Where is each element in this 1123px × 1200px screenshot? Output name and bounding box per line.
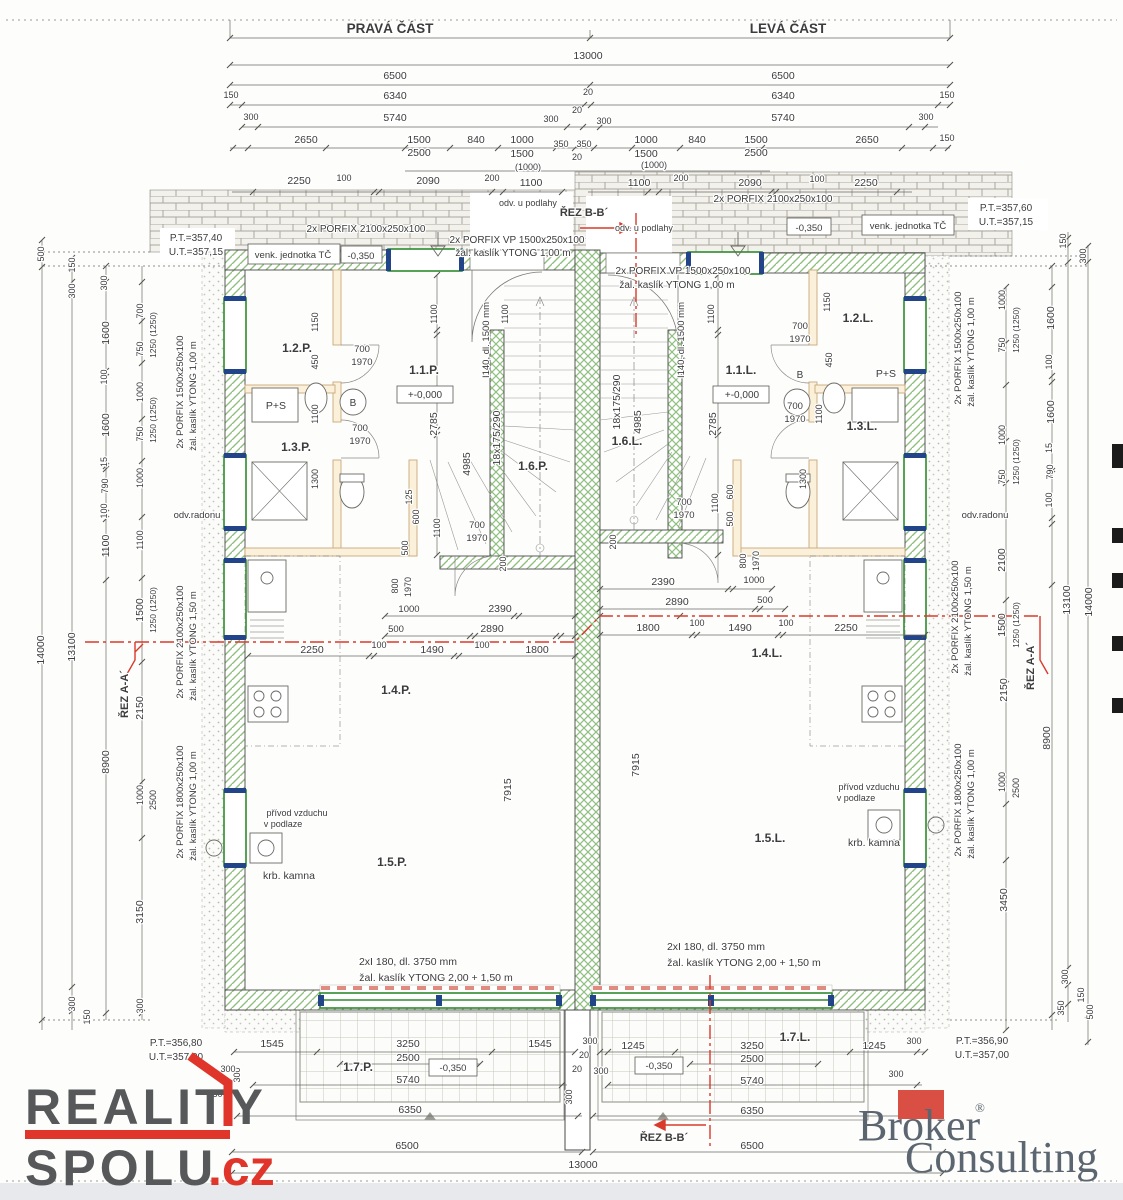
dim-label: 3250 xyxy=(740,1040,764,1052)
dim-label: 1100 xyxy=(500,304,510,323)
dim-label: odv. u podlahy xyxy=(499,198,557,208)
dim-label: 1970 xyxy=(351,357,372,368)
dim-label: v podlaze xyxy=(264,819,303,829)
dim-label: 6350 xyxy=(398,1104,422,1116)
dim-label: 1245 xyxy=(862,1040,886,1052)
broker-consulting-logo[interactable]: Broker ® Consulting xyxy=(858,1090,1098,1182)
dim-label: 2x PORFIX 1800x250x100 xyxy=(953,743,964,856)
room-label: 1.2.L. xyxy=(843,311,874,325)
dim-label: 350 xyxy=(576,139,591,149)
dim-label: 1100 xyxy=(135,530,145,549)
dim-label: 800 xyxy=(738,553,748,568)
dim-label: 1150 xyxy=(310,312,320,331)
dim-label: 13000 xyxy=(573,50,602,62)
dim-label: 6500 xyxy=(771,70,795,82)
dim-label: 1600 xyxy=(1045,306,1057,330)
dim-label: 750 xyxy=(997,469,1007,484)
dim-label: 1970 xyxy=(673,510,694,521)
dim-label: 18x175/290 xyxy=(611,374,623,429)
dim-label: 300 xyxy=(888,1069,903,1079)
dim-label: 2xI 180, dl. 3750 mm xyxy=(359,956,457,968)
dim-label: 5740 xyxy=(740,1075,764,1087)
dim-label: 300 xyxy=(593,1066,608,1076)
room-label: 1.4.L. xyxy=(752,646,783,660)
dim-label: 300 xyxy=(906,1036,921,1046)
dim-label: 100 xyxy=(474,640,489,650)
dim-label: 200 xyxy=(498,556,508,571)
party-wall-extension xyxy=(565,1010,590,1150)
room-label: LEVÁ ČÁST xyxy=(750,21,827,36)
dim-label: 1100 xyxy=(432,518,442,537)
room-label: 1.2.P. xyxy=(282,341,312,355)
dim-label: 1500 xyxy=(744,134,768,146)
dim-label: 350 xyxy=(553,139,568,149)
dim-label: 2x PORFIX VP 1500x250x100 xyxy=(450,235,585,246)
washbasin-icon xyxy=(823,383,845,413)
dim-label: 150 xyxy=(1058,233,1068,248)
dim-label: U.T.=357,15 xyxy=(169,247,224,258)
dim-label: 1970 xyxy=(466,533,487,544)
room-label: 1.6.L. xyxy=(612,434,643,448)
dim-label: 1000 xyxy=(135,382,145,402)
dim-label: 1250 (1250) xyxy=(148,312,158,358)
dim-label: 450 xyxy=(824,352,834,367)
room-label: 1.5.P. xyxy=(377,855,407,869)
dim-label: P+S xyxy=(876,368,896,380)
section-label: ŘEZ B-B´ xyxy=(560,206,609,219)
dim-label: 1100 xyxy=(310,404,320,423)
dim-label: 2500 xyxy=(1011,778,1021,798)
dim-label: 840 xyxy=(467,134,485,146)
dim-label: 100 xyxy=(778,618,793,628)
room-label: 1.7.L. xyxy=(780,1030,811,1044)
dim-label: 150 xyxy=(223,90,238,100)
floor-plan-drawing: PRAVÁ ČÁSTLEVÁ ČÁST130006500650015063402… xyxy=(0,0,1123,1200)
dim-label: 2150 xyxy=(134,696,146,720)
dim-label: 2x PORFIX 1500x250x100 xyxy=(953,291,964,404)
dim-label: 20 xyxy=(583,87,593,97)
dim-label: 300 xyxy=(596,116,611,126)
dim-label: 150 xyxy=(67,257,77,272)
dim-label: 1000 xyxy=(398,604,419,615)
dim-label: 1600 xyxy=(100,321,112,345)
dim-label: 1970 xyxy=(403,577,413,597)
dim-label: 1490 xyxy=(728,622,752,634)
dim-label: 125 xyxy=(404,489,414,504)
section-label: ŘEZ B-B´ xyxy=(640,1131,689,1144)
dim-label: 1500 xyxy=(407,134,431,146)
kitchen-sink-icon xyxy=(248,560,286,612)
dim-label: 7915 xyxy=(630,753,642,777)
dim-label: 100 xyxy=(1044,354,1054,369)
dim-label: U.T.=357,15 xyxy=(979,217,1034,228)
reality-logo-word2: SPOLU xyxy=(25,1140,217,1196)
dim-label: 6500 xyxy=(383,70,407,82)
dim-label: P.T.=356,80 xyxy=(150,1038,203,1049)
washer-dryer-left-unit xyxy=(852,388,898,422)
reality-logo-bar xyxy=(25,1130,230,1139)
walls xyxy=(225,250,925,1010)
dim-label: 350 xyxy=(1056,1000,1066,1015)
dim-label: 2090 xyxy=(416,175,440,187)
dim-label: 4985 xyxy=(632,410,644,434)
dim-label: 2500 xyxy=(744,147,768,159)
dim-label: odv. u podlahy xyxy=(615,223,673,233)
dim-label: 700 xyxy=(135,303,145,318)
reality-logo-tld: .cz xyxy=(208,1140,275,1196)
dim-label: 5740 xyxy=(383,112,407,124)
dim-label: 3250 xyxy=(396,1038,420,1050)
dim-label: 500 xyxy=(1085,1004,1095,1019)
dim-label: 2650 xyxy=(294,134,318,146)
dim-label: 300 xyxy=(67,283,77,298)
stair-landing-wall-left-unit xyxy=(600,530,723,543)
dim-label: 7915 xyxy=(502,778,514,802)
dim-label: 100 xyxy=(99,503,109,518)
dim-label: 750 xyxy=(997,337,1007,352)
section-label: ŘEZ A-A´ xyxy=(118,670,131,718)
dim-label: 1545 xyxy=(260,1038,284,1050)
dim-label: 1800 xyxy=(525,644,549,656)
dim-label: 14000 xyxy=(1083,587,1095,616)
dim-label: 1500 xyxy=(510,148,534,160)
dim-label: 840 xyxy=(688,134,706,146)
dim-label: 15 xyxy=(1044,443,1054,453)
dim-label: 1150 xyxy=(822,292,832,311)
dim-label: 150 xyxy=(939,90,954,100)
dim-label: 600 xyxy=(725,484,735,499)
dim-label: 2890 xyxy=(665,596,689,608)
dim-label: 2500 xyxy=(407,147,431,159)
dim-label: 300 xyxy=(1078,248,1088,263)
dim-label: 1970 xyxy=(349,436,370,447)
room-label: 1.3.P. xyxy=(281,440,311,454)
dim-label: P.T.=357,60 xyxy=(980,203,1033,214)
dim-label: 2785 xyxy=(707,412,719,436)
room-label: 1.7.P. xyxy=(343,1060,373,1074)
dim-label: 100 xyxy=(689,618,704,628)
dim-label: 6340 xyxy=(771,90,795,102)
dim-label: 13100 xyxy=(66,632,78,661)
room-label: 1.5.L. xyxy=(755,831,786,845)
dim-label: 200 xyxy=(608,534,618,549)
dim-label: žal. kaslík YTONG 1,00 m xyxy=(188,751,199,861)
dim-label: 13100 xyxy=(1061,585,1073,614)
dim-label: -0,350 xyxy=(646,1061,673,1072)
dim-label: 2x PORFIX 2100x250x100 xyxy=(307,224,426,235)
dim-label: 2250 xyxy=(854,177,878,189)
dim-label: 1250 (1250) xyxy=(148,397,158,443)
dim-label: 790 xyxy=(1045,464,1055,479)
stove-icon xyxy=(248,686,288,722)
dim-label: 14000 xyxy=(35,635,47,664)
dim-label: krb. kamna xyxy=(263,870,315,882)
room-label: 1.1.P. xyxy=(409,363,439,377)
dim-label: 3150 xyxy=(134,900,146,924)
dim-label: 1000 xyxy=(743,575,764,586)
dim-label: 300 xyxy=(67,996,77,1011)
room-label: 1.4.P. xyxy=(381,683,411,697)
dim-label: 2x PORFIX 2100x250x100 xyxy=(950,560,961,673)
dim-label: v podlaze xyxy=(837,793,876,803)
dim-label: přívod vzduchu xyxy=(838,782,899,792)
dim-label: -0,350 xyxy=(440,1063,467,1074)
dim-label: 1970 xyxy=(751,551,761,571)
room-label: 1.1.L. xyxy=(726,363,757,377)
dim-label: 700 xyxy=(354,344,370,355)
dim-label: 8900 xyxy=(1041,726,1053,750)
dim-label: 500 xyxy=(400,540,410,555)
dim-label: 1800 xyxy=(636,622,660,634)
stairs xyxy=(430,286,706,560)
dim-label: 2xI 180, dl. 3750 mm xyxy=(667,941,765,953)
dim-label: 750 xyxy=(135,341,145,356)
dim-label: 1100 xyxy=(814,404,824,423)
dim-label: 300 xyxy=(918,112,933,122)
dim-label: 2890 xyxy=(480,623,504,635)
dim-label: 2x PORFIX 1800x250x100 xyxy=(175,745,186,858)
dim-label: žal. kaslík YTONG 1,00 m xyxy=(966,297,977,407)
dim-label: žal. kaslík YTONG 1,00 m xyxy=(966,749,977,859)
dim-label: 1300 xyxy=(310,469,320,489)
dim-label: 1250 (1250) xyxy=(1011,439,1021,485)
dim-label: P+S xyxy=(266,400,286,412)
broker-logo-word2: Consulting xyxy=(905,1133,1098,1182)
dim-label: žal. kaslík YTONG 1,50 m xyxy=(963,566,974,676)
terrace-right-unit xyxy=(300,1012,560,1102)
room-label: 1.3.L. xyxy=(847,419,878,433)
dim-label: 100 xyxy=(1044,492,1054,507)
dim-label: 6500 xyxy=(740,1140,764,1152)
dim-label: 1500 xyxy=(634,148,658,160)
dim-label: 20 xyxy=(572,105,582,115)
dim-label: 500 xyxy=(757,595,773,606)
dim-label: 1250 (1250) xyxy=(1011,602,1021,648)
dim-label: 13000 xyxy=(568,1159,597,1171)
stove-icon xyxy=(862,686,902,722)
dim-label: 2785 xyxy=(428,412,440,436)
dim-label: 700 xyxy=(352,423,368,434)
room-label: PRAVÁ ČÁST xyxy=(347,21,435,36)
room-label: 1.6.P. xyxy=(518,459,548,473)
dim-label: 150 xyxy=(1076,987,1086,1002)
dim-label: 300 xyxy=(1060,969,1070,984)
dim-label: 100 xyxy=(371,640,386,650)
dim-label: 1970 xyxy=(789,334,810,345)
dim-label: P.T.=356,90 xyxy=(956,1036,1009,1047)
dim-label: 300 xyxy=(220,1064,235,1074)
dim-label: 700 xyxy=(792,321,808,332)
dim-label: 15 xyxy=(99,457,109,467)
dim-label: 300 xyxy=(582,1036,597,1046)
dim-label: 8900 xyxy=(100,750,112,774)
dim-label: 1300 xyxy=(798,469,808,489)
dim-label: 2500 xyxy=(396,1052,420,1064)
dim-label: žal. kaslík YTONG 2,00 + 1,50 m xyxy=(359,972,513,984)
dim-label: 500 xyxy=(725,511,735,526)
dim-label: 200 xyxy=(484,173,499,183)
dim-label: P.T.=357,40 xyxy=(170,233,223,244)
dim-label: 1100 xyxy=(628,177,651,189)
dim-label: 18x175/290 xyxy=(491,410,503,465)
dim-label: 800 xyxy=(390,578,400,593)
dim-label: 1545 xyxy=(528,1038,552,1050)
dim-label: 20 xyxy=(572,1064,582,1074)
dim-label: 300 xyxy=(543,114,558,124)
dim-label: 2500 xyxy=(740,1053,764,1065)
dim-label: 500 xyxy=(388,624,404,635)
broker-logo-reg: ® xyxy=(975,1100,985,1115)
dim-label: 700 xyxy=(469,520,485,531)
dim-label: 1250 (1250) xyxy=(1011,307,1021,353)
dim-label: 3450 xyxy=(998,888,1010,912)
dim-label: 700 xyxy=(787,401,803,412)
dim-label: 1600 xyxy=(1045,400,1057,424)
dim-label: 1000 xyxy=(634,134,658,146)
dim-label: 2150 xyxy=(998,678,1010,702)
dim-label: -0,350 xyxy=(348,251,375,262)
dim-label: 100 xyxy=(809,174,824,184)
dim-label: B xyxy=(350,398,357,409)
floor-plan-sheet: PRAVÁ ČÁSTLEVÁ ČÁST130006500650015063402… xyxy=(0,0,1123,1200)
dim-label: 2500 xyxy=(148,790,158,810)
dim-label: I140, dl. 1500 mm xyxy=(676,302,687,378)
dim-label: 20 xyxy=(572,152,582,162)
dim-label: 500 xyxy=(36,246,46,261)
dim-label: 200 xyxy=(673,173,688,183)
dim-label: 300 xyxy=(99,275,109,290)
dim-label: 1100 xyxy=(429,304,439,323)
dim-label: 2650 xyxy=(855,134,879,146)
dim-label: 1100 xyxy=(706,304,716,323)
dim-label: +-0,000 xyxy=(408,390,443,401)
dim-label: 1245 xyxy=(621,1040,645,1052)
dim-label: žal. kaslík YTONG 1,00 m xyxy=(455,248,570,259)
dim-label: 5740 xyxy=(396,1074,420,1086)
dim-label: (1000) xyxy=(641,160,667,170)
dim-label: 150 xyxy=(939,133,954,143)
dim-label: 1000 xyxy=(997,425,1007,445)
dim-label: 1500 xyxy=(134,598,146,622)
dim-label: 5740 xyxy=(771,112,795,124)
dim-label: 1000 xyxy=(997,290,1007,310)
dim-label: 700 xyxy=(676,497,692,508)
dim-label: 1970 xyxy=(784,414,805,425)
dim-label: venk. jednotka TČ xyxy=(870,221,947,232)
dim-label: odv.radonu xyxy=(962,510,1009,521)
kitchen-sink-icon xyxy=(864,560,902,612)
dim-label: 2250 xyxy=(287,175,311,187)
legend-swatches xyxy=(1112,444,1123,713)
dim-label: 2x PORFIX 2100x250x100 xyxy=(714,194,833,205)
dim-label: 600 xyxy=(411,509,421,524)
dim-label: 100 xyxy=(99,369,109,384)
dim-label: 2390 xyxy=(651,576,675,588)
dim-label: 300 xyxy=(135,998,145,1013)
dim-label: žal. kaslík YTONG 2,00 + 1,50 m xyxy=(667,957,821,969)
dim-label: -0,350 xyxy=(796,223,823,234)
dim-label: I140, dl. 1500 mm xyxy=(481,302,492,378)
dim-label: 2250 xyxy=(834,622,858,634)
dim-label: 2090 xyxy=(738,177,762,189)
logos: REALITY SPOLU .cz Broker ® Consulting xyxy=(25,1056,1098,1196)
dim-label: 1100 xyxy=(710,493,720,512)
dim-label: krb. kamna xyxy=(848,837,900,849)
dim-label: 1000 xyxy=(135,785,145,805)
dim-label: 4985 xyxy=(461,452,473,476)
dim-label: 1600 xyxy=(100,413,112,437)
dim-label: 6500 xyxy=(395,1140,419,1152)
dim-label: 2250 xyxy=(300,644,324,656)
dim-label: B xyxy=(797,370,804,381)
dim-label: 1250 (1250) xyxy=(148,587,158,633)
dim-label: 100 xyxy=(336,173,351,183)
dim-label: žal. kaslík YTONG 1,00 m xyxy=(619,280,734,291)
dim-label: 2x PORFIX 1500x250x100 xyxy=(175,335,186,448)
dim-label: žal. kaslík YTONG 1,50 m xyxy=(188,591,199,701)
dim-label: 2100 xyxy=(996,548,1008,572)
section-label: ŘEZ A-A´ xyxy=(1024,642,1037,690)
dim-label: 1100 xyxy=(520,177,543,189)
dim-label: +-0,000 xyxy=(725,390,760,401)
dim-label: 1100 xyxy=(100,535,112,558)
dim-label: odv.radonu xyxy=(174,510,221,521)
dim-label: přívod vzduchu xyxy=(266,808,327,818)
dim-label: 150 xyxy=(82,1009,92,1024)
dim-label: 1500 xyxy=(996,613,1008,637)
dim-label: 1490 xyxy=(420,644,444,656)
dim-label: 6340 xyxy=(383,90,407,102)
dim-label: 790 xyxy=(100,478,110,493)
dim-label: 1000 xyxy=(135,468,145,488)
dim-label: 300 xyxy=(564,1089,574,1104)
dim-label: 1000 xyxy=(510,134,534,146)
dim-label: 1000 xyxy=(997,772,1007,792)
dim-label: 450 xyxy=(310,354,320,369)
dim-label: (1000) xyxy=(515,162,541,172)
dim-label: 6350 xyxy=(740,1105,764,1117)
dim-label: venk. jednotka TČ xyxy=(255,250,332,261)
dim-label: U.T.=357,00 xyxy=(955,1050,1010,1061)
dim-label: 2x PORFIX VP 1500x250x100 xyxy=(616,266,751,277)
dim-label: 2390 xyxy=(488,603,512,615)
dim-label: žal. kaslík YTONG 1,00 m xyxy=(188,341,199,451)
dim-label: 2x PORFIX 2100x250x100 xyxy=(175,585,186,698)
dim-label: 750 xyxy=(135,426,145,441)
dim-label: 300 xyxy=(243,112,258,122)
dim-label: 20 xyxy=(579,1050,589,1060)
